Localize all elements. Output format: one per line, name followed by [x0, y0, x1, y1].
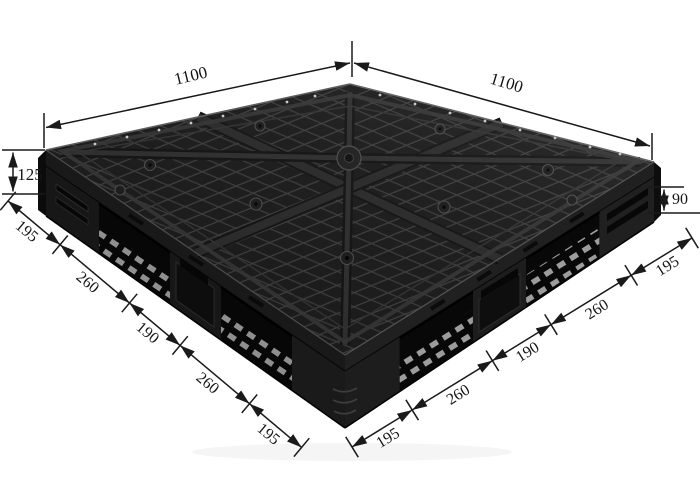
dim-label-right-seg-190: 190 — [513, 339, 542, 366]
pallet-illustration — [38, 84, 661, 461]
dim-label-right-height-90: 90 — [672, 191, 688, 208]
dim-label-left-seg-260b: 260 — [193, 369, 222, 397]
dim-label-left-height-125: 125 — [17, 165, 43, 184]
pallet-diagram-svg: 1100 1100 125 90 — [0, 0, 700, 500]
dim-label-left-seg-260a: 260 — [73, 268, 102, 296]
dim-label-top-right-1100: 1100 — [488, 69, 525, 97]
pallet-dimension-figure: 1100 1100 125 90 — [0, 0, 700, 500]
dim-label-right-seg-260a: 260 — [444, 382, 473, 409]
dim-label-top-left-1100: 1100 — [172, 63, 209, 89]
dim-label-left-seg-190: 190 — [133, 319, 162, 347]
dim-label-left-seg-195a: 195 — [12, 217, 41, 245]
dim-label-right-seg-195b: 195 — [653, 253, 682, 280]
dim-label-right-seg-260b: 260 — [582, 296, 611, 323]
